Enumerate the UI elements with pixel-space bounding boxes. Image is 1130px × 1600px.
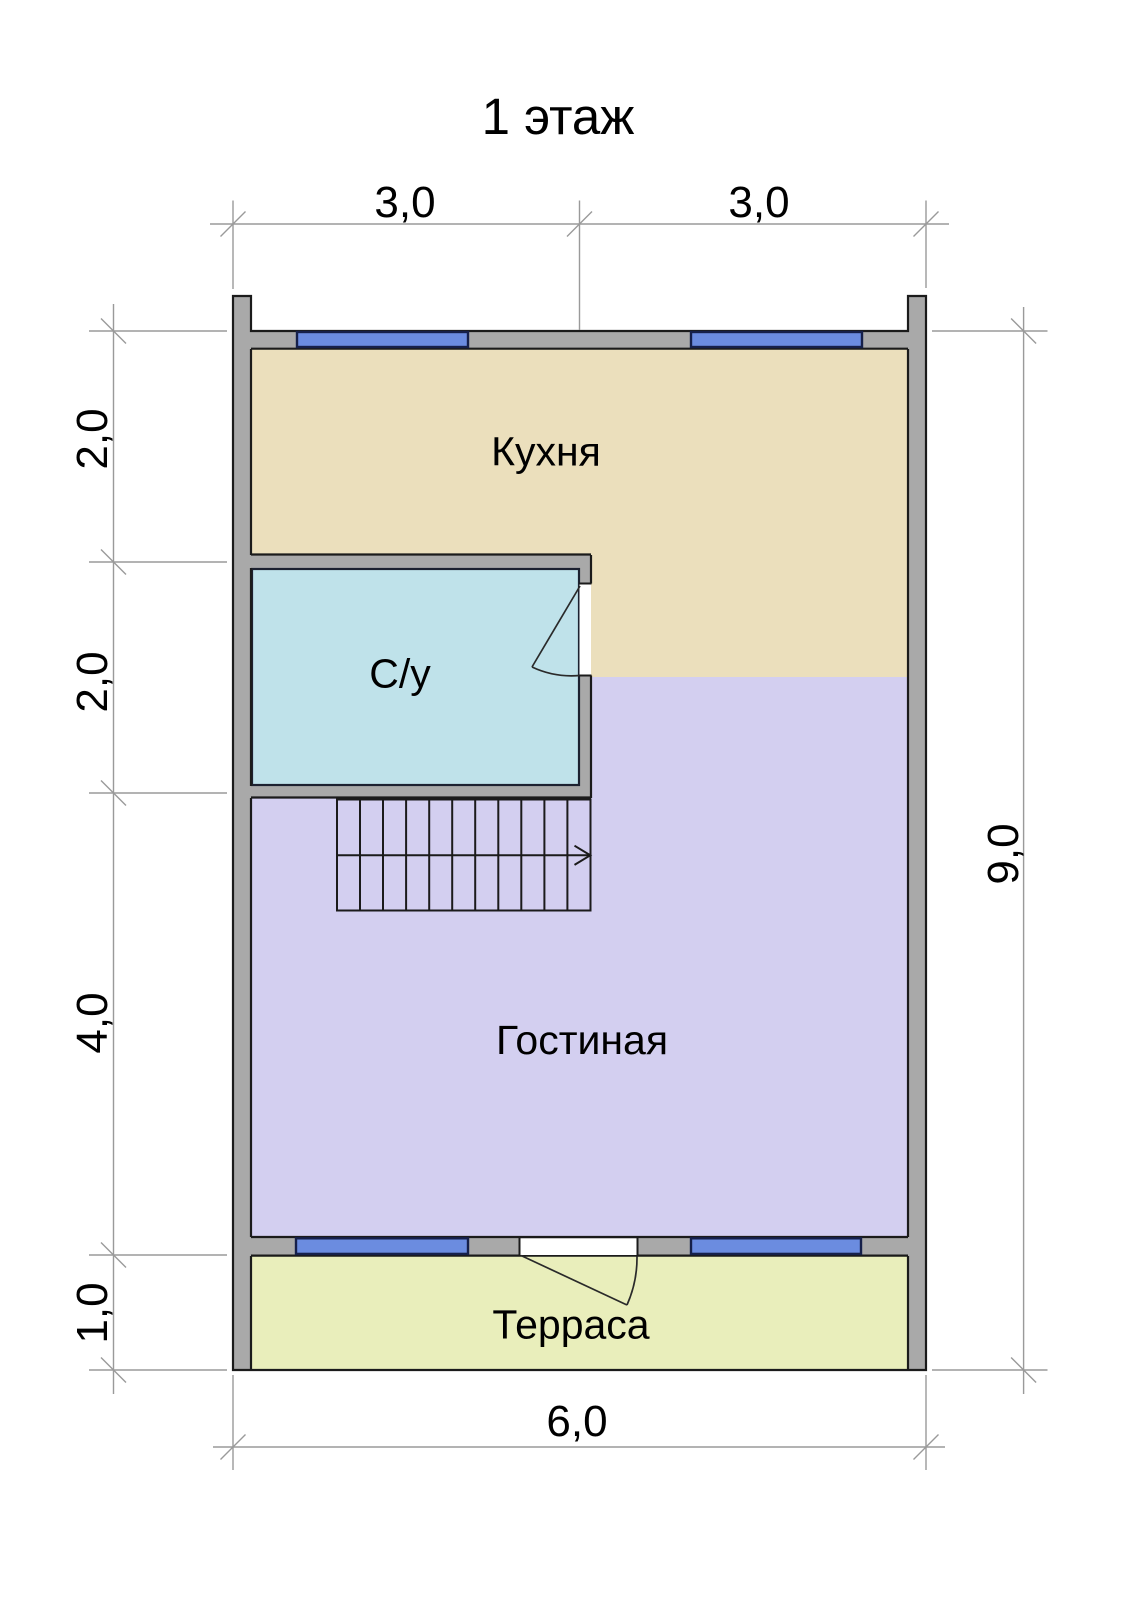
svg-text:3,0: 3,0 [728,178,789,227]
svg-text:1 этаж: 1 этаж [482,88,635,145]
svg-text:4,0: 4,0 [68,992,117,1053]
svg-text:Терраса: Терраса [492,1302,649,1348]
svg-text:6,0: 6,0 [546,1397,607,1446]
svg-text:3,0: 3,0 [374,178,435,227]
svg-text:9,0: 9,0 [979,823,1028,884]
svg-text:С/у: С/у [369,651,431,697]
svg-text:2,0: 2,0 [68,651,117,712]
svg-text:2,0: 2,0 [68,408,117,469]
svg-text:Гостиная: Гостиная [496,1017,668,1063]
svg-text:Кухня: Кухня [491,429,601,475]
svg-text:1,0: 1,0 [68,1282,117,1343]
